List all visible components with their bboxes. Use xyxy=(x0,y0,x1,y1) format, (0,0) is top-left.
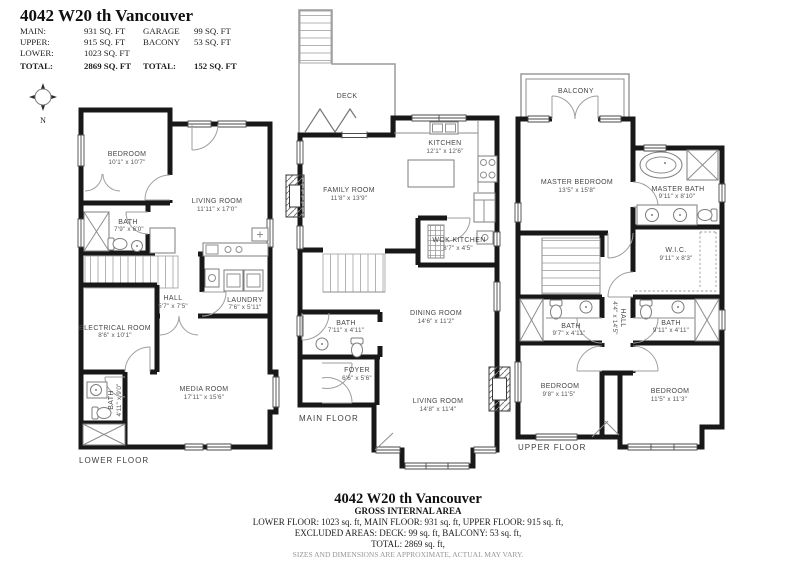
area-total-label: TOTAL: xyxy=(143,61,176,71)
room-dims: 8'6" x 10'1" xyxy=(98,332,131,339)
room-label: LAUNDRY xyxy=(227,297,263,304)
room-dims: 7'11" x 4'11" xyxy=(328,327,364,334)
room-dims: 12'1" x 12'6" xyxy=(426,148,463,155)
toilet-icon xyxy=(698,209,717,221)
room-dims: 5'7" x 7'5" xyxy=(158,303,188,310)
room-dims: 11'11" x 17'0" xyxy=(197,206,237,213)
room-label: DECK xyxy=(337,93,358,100)
compass-north-label: N xyxy=(40,116,46,125)
room-dims: 7'9" x 6'0" xyxy=(114,226,144,233)
room-dims: 6'6" x 5'6" xyxy=(342,375,372,382)
footer-areas-line: LOWER FLOOR: 1023 sq. ft, MAIN FLOOR: 93… xyxy=(253,517,564,527)
area-value: 53 SQ. FT xyxy=(194,37,232,47)
svg-text:4'11" x 9'0": 4'11" x 9'0" xyxy=(116,384,123,417)
footer-disclaimer: SIZES AND DIMENSIONS ARE APPROXIMATE, AC… xyxy=(293,550,524,559)
room-label: DINING ROOM xyxy=(410,310,462,317)
svg-text:HALL: HALL xyxy=(619,309,626,328)
kitchen-island xyxy=(408,160,454,187)
floor-label-upper: UPPER FLOOR xyxy=(518,443,586,452)
room-dims: 7'6" x 5'11" xyxy=(229,304,262,311)
room-dims: 9'11" x 8'3" xyxy=(660,255,693,262)
room-label: BATH xyxy=(118,219,138,226)
room-label: W.I.C. xyxy=(665,247,686,254)
area-label: UPPER: xyxy=(20,37,50,47)
room-label: BATH xyxy=(661,320,681,327)
area-label: MAIN: xyxy=(20,26,46,36)
page-title: 4042 W20 th Vancouver xyxy=(20,6,193,25)
room-label: ELECTRICAL ROOM xyxy=(79,325,151,332)
main-stairs xyxy=(323,254,385,292)
room-label: MEDIA ROOM xyxy=(179,386,228,393)
room-label: BEDROOM xyxy=(651,388,690,395)
room-label: WOK KITCHEN xyxy=(432,237,485,244)
area-total-label: TOTAL: xyxy=(20,61,53,71)
room-dims: 10'1" x 10'7" xyxy=(108,159,145,166)
room-label: BATH xyxy=(336,320,356,327)
area-total-value: 2869 SQ. FT xyxy=(84,61,131,71)
footer-total-line: TOTAL: 2869 sq. ft, xyxy=(371,539,445,549)
room-label: FAMILY ROOM xyxy=(323,187,375,194)
room-label: LIVING ROOM xyxy=(413,398,464,405)
closet xyxy=(150,228,175,253)
room-dims: 14'6" x 11'2" xyxy=(418,318,455,325)
room-label: BATH xyxy=(561,323,581,330)
room-dims: 14'8" x 11'4" xyxy=(420,406,457,413)
area-label: LOWER: xyxy=(20,48,54,58)
footer-subtitle: GROSS INTERNAL AREA xyxy=(354,506,462,516)
room-dims: 9'8" x 11'5" xyxy=(543,391,576,398)
area-value: 931 SQ. FT xyxy=(84,26,126,36)
floorplan-image: 4042 W20 th Vancouver MAIN: 931 SQ. FT G… xyxy=(0,0,800,566)
room-label: BALCONY xyxy=(558,88,594,95)
room-label: KITCHEN xyxy=(428,140,461,147)
room-label: MASTER BATH xyxy=(651,186,704,193)
room-dims: 11'5" x 11'3" xyxy=(651,396,687,403)
room-dims: 9'7" x 4'11" xyxy=(553,330,586,337)
toilet-icon xyxy=(640,300,652,319)
area-total-value: 152 SQ. FT xyxy=(194,61,237,71)
floor-label-lower: LOWER FLOOR xyxy=(79,456,149,465)
svg-text:4'4" x 14'5": 4'4" x 14'5" xyxy=(611,301,618,334)
svg-text:BATH: BATH xyxy=(108,390,115,410)
toilet-icon xyxy=(108,238,127,250)
room-dims: 9'11" x 8'10" xyxy=(659,193,696,200)
room-label: HALL xyxy=(164,295,183,302)
footer-title: 4042 W20 th Vancouver xyxy=(334,491,482,507)
room-dims: 13'5" x 15'8" xyxy=(558,187,595,194)
room-label: LIVING ROOM xyxy=(192,198,243,205)
area-label: BACONY xyxy=(143,37,181,47)
room-dims: 9'11" x 4'11" xyxy=(653,327,689,334)
room-dims: 11'8" x 13'9" xyxy=(331,195,368,202)
area-value: 1023 SQ. FT xyxy=(84,48,130,58)
laundry-sink-icon xyxy=(205,269,219,287)
room-dims: 17'11" x 15'6" xyxy=(184,394,224,401)
deck-stairs xyxy=(300,11,331,63)
footer-excluded-line: EXCLUDED AREAS: DECK: 99 sq. ft, BALCONY… xyxy=(295,528,521,538)
area-value: 99 SQ. FT xyxy=(194,26,232,36)
area-value: 915 SQ. FT xyxy=(84,37,126,47)
room-label: FOYER xyxy=(344,367,370,374)
upper-stairs xyxy=(542,238,600,294)
toilet-icon xyxy=(550,300,562,319)
toilet-icon xyxy=(351,338,363,357)
area-label: GARAGE xyxy=(143,26,180,36)
room-dims: 8'7" x 4'5" xyxy=(443,245,473,252)
floor-label-main: MAIN FLOOR xyxy=(299,414,359,423)
room-label: BEDROOM xyxy=(541,383,580,390)
floorplan-page: 4042 W20 th Vancouver MAIN: 931 SQ. FT G… xyxy=(0,0,800,566)
room-label: MASTER BEDROOM xyxy=(541,179,613,186)
room-label: BEDROOM xyxy=(108,151,147,158)
